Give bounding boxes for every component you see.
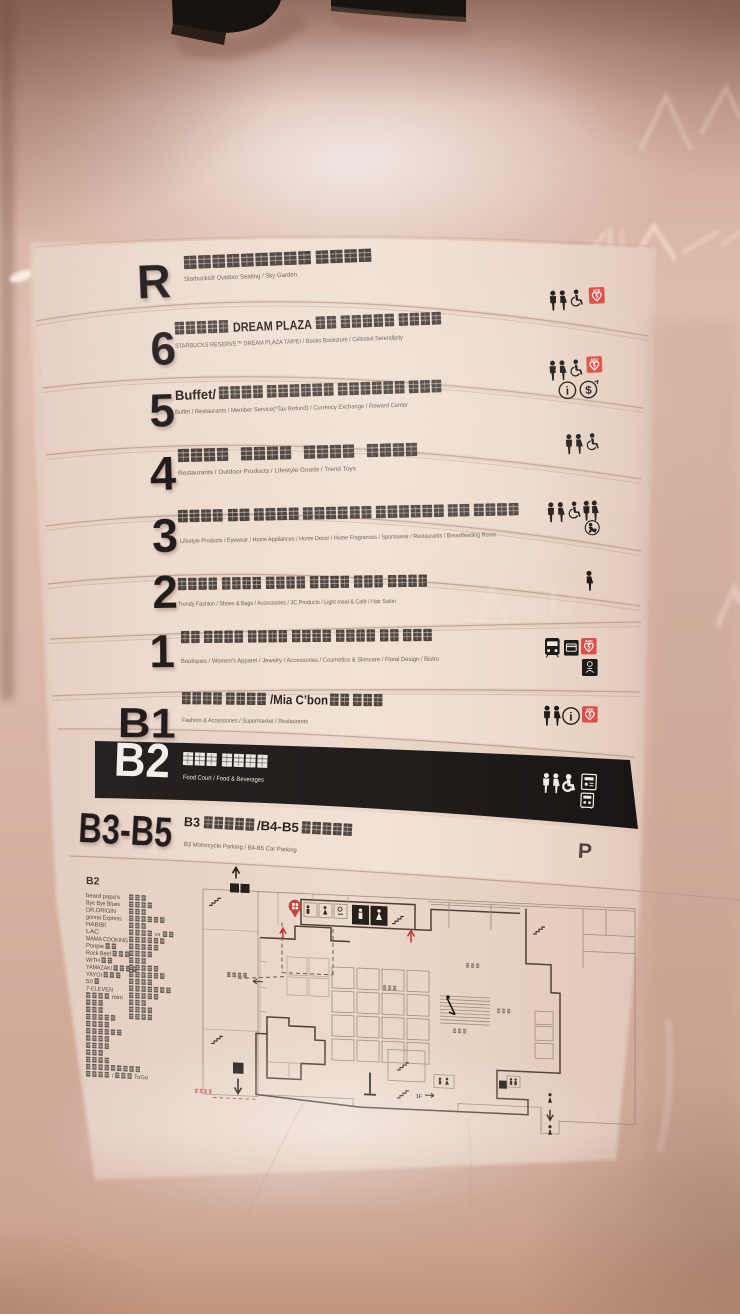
svg-text:B2: B2 [86,875,100,888]
svg-text:P: P [577,840,592,864]
svg-text:mini: mini [112,995,123,1002]
svg-text:3: 3 [151,509,178,563]
svg-text:LAC: LAC [86,929,100,936]
svg-text:B3-B5: B3-B5 [77,804,173,856]
svg-text:2: 2 [152,566,178,618]
svg-text:Ponpie: Ponpie [86,943,105,950]
svg-text:Fashion & Accessories / Superm: Fashion & Accessories / Supermarket / Re… [182,717,308,725]
svg-text:B2: B2 [113,734,171,789]
svg-text:HABIBI: HABIBI [86,922,106,929]
svg-text:vs: vs [155,932,161,938]
svg-text:YAYOI: YAYOI [86,972,102,979]
svg-text:/B4-B5: /B4-B5 [257,818,300,835]
svg-text:WITH: WITH [86,958,100,965]
svg-text:1: 1 [149,625,175,677]
svg-text:/Mia C’bon: /Mia C’bon [270,692,328,708]
svg-text:B3: B3 [184,814,201,830]
svg-text:50: 50 [86,979,94,985]
